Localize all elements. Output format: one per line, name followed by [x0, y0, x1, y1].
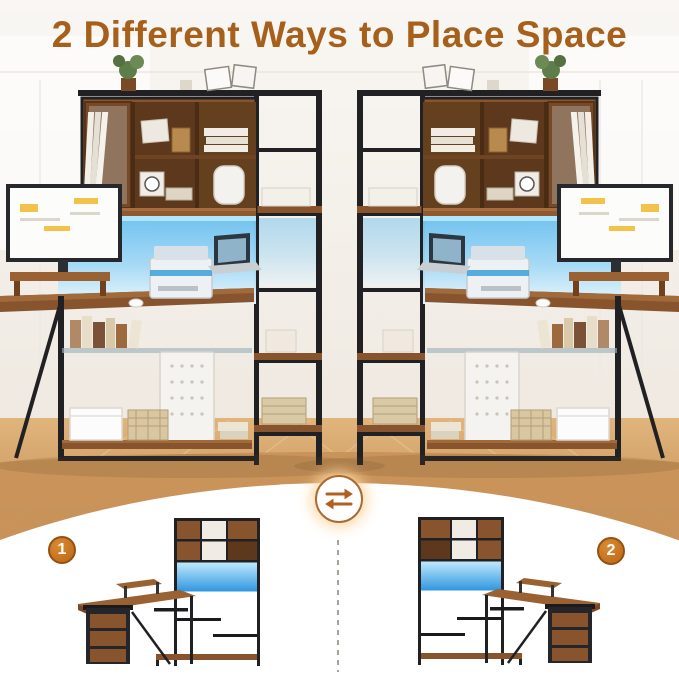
swap-icon [315, 475, 363, 523]
dashed-divider [337, 540, 339, 672]
swap-arrows-icon [324, 486, 354, 512]
showroom-photo [0, 0, 679, 545]
option-2-badge: 2 [597, 537, 625, 565]
product-image: 2 Different Ways to Place Space 1 2 [0, 0, 679, 676]
layout-option-1-image [70, 512, 270, 674]
headline: 2 Different Ways to Place Space [0, 14, 679, 56]
layout-option-2-image [408, 511, 608, 673]
option-1-badge: 1 [48, 536, 76, 564]
